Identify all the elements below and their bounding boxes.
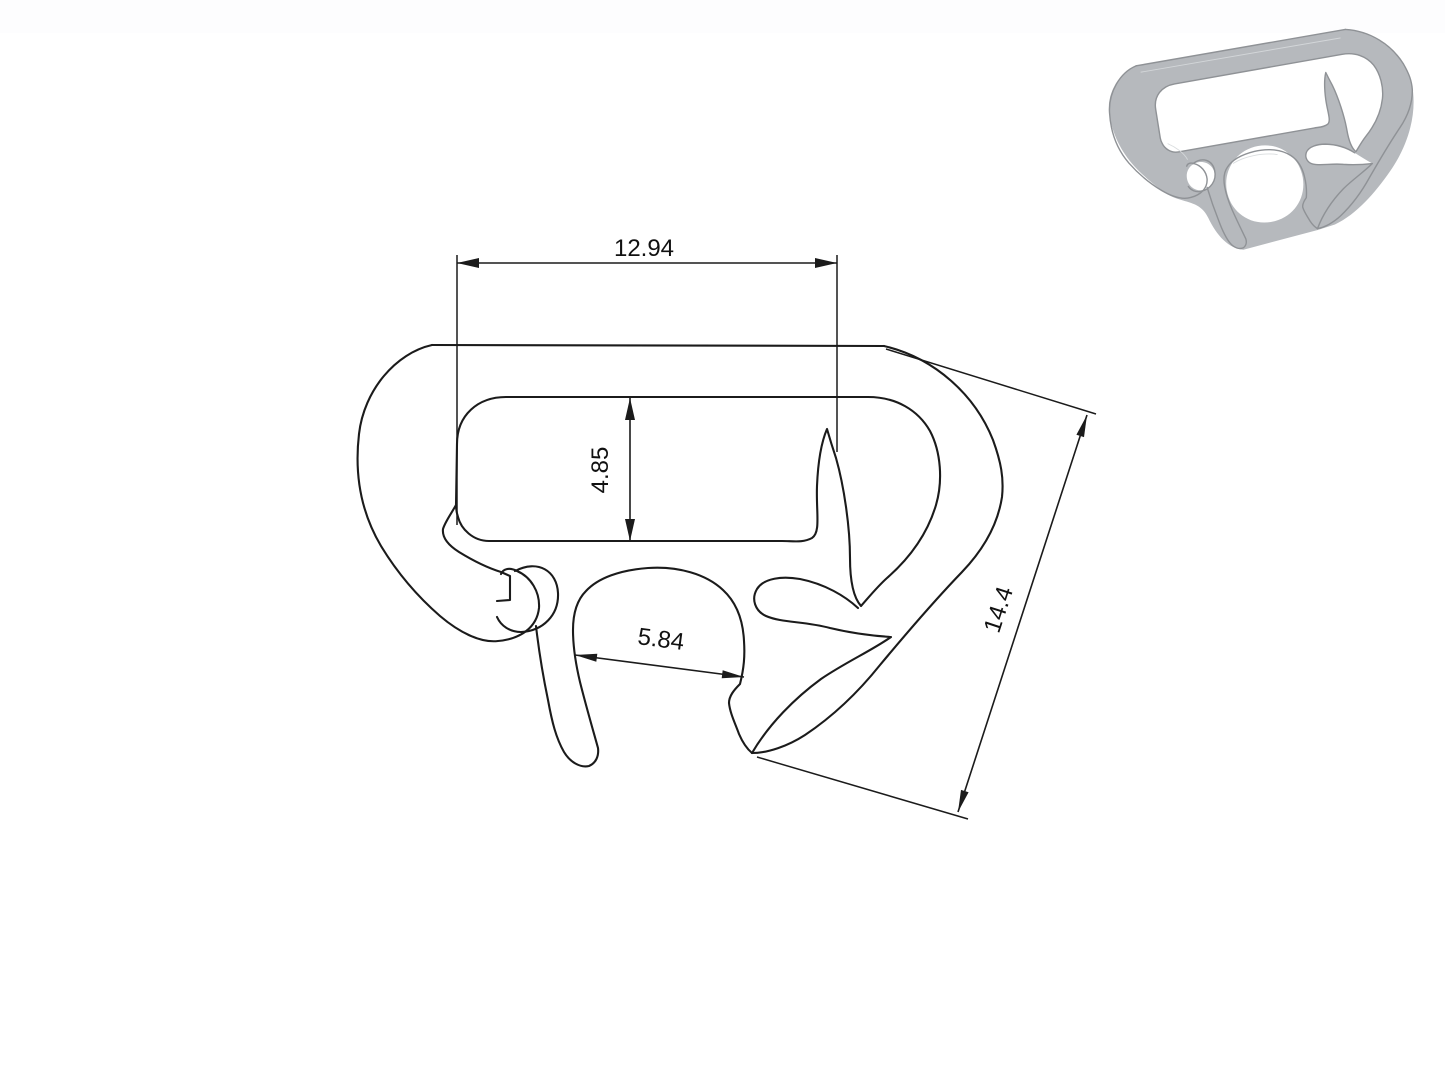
arrowhead-right	[815, 258, 837, 268]
dimension-line	[575, 655, 744, 677]
extension-line	[757, 757, 968, 819]
profile-top-edge	[432, 345, 884, 346]
arrowhead-left	[575, 654, 597, 662]
dimension-top-width: 12.94	[457, 235, 837, 525]
profile-claw-channel-notch	[443, 505, 510, 601]
dimension-bottom-channel-width: 5.84	[575, 623, 744, 678]
profile-left-leg-and-bulb	[536, 568, 752, 767]
dimension-inner-cavity-height: 4.85	[587, 398, 635, 541]
render-body-silhouette	[1102, 19, 1435, 268]
dimension-value-inner-height: 4.85	[587, 447, 614, 494]
profile-outer-left-sweep	[358, 345, 540, 641]
arrowhead-right	[722, 670, 744, 678]
arrowhead-up	[625, 398, 635, 420]
arrowhead-top	[1076, 415, 1087, 437]
dimension-value-diagonal-height: 14.4	[979, 583, 1019, 636]
drawing-sheet: 12.94 4.85 5.84 14.4	[0, 0, 1445, 1084]
arrowhead-down	[625, 519, 635, 541]
extension-line	[886, 349, 1096, 414]
dimension-line	[958, 415, 1087, 812]
dimension-value-channel-width: 5.84	[636, 623, 686, 656]
render-3d-part	[1102, 19, 1435, 268]
arrowhead-left	[457, 258, 479, 268]
technical-drawing-svg: 12.94 4.85 5.84 14.4	[0, 0, 1445, 1084]
dimension-overall-diagonal-height: 14.4	[757, 349, 1096, 819]
profile-claw-curl	[497, 566, 558, 632]
profile-cross-section	[358, 345, 1003, 766]
dimension-value-top-width: 12.94	[614, 235, 674, 262]
profile-outer-right-hook	[752, 346, 1003, 753]
arrowhead-bottom	[958, 790, 969, 812]
profile-comma-slot-and-right-leg	[752, 578, 891, 753]
